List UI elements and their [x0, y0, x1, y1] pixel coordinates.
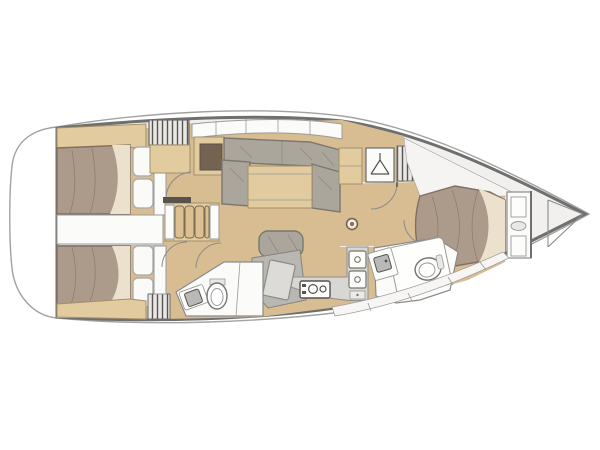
- cooktop-knob: [302, 284, 306, 287]
- engine-compartment: [57, 215, 163, 244]
- mast-post-center: [350, 222, 354, 226]
- side-settee-endcap: [165, 205, 174, 239]
- sink-basin: [349, 251, 366, 268]
- aft-cabin-top-door: [163, 197, 191, 203]
- shelf-oval-inset: [511, 222, 526, 231]
- wardrobe: [154, 246, 166, 294]
- sink-basin: [349, 271, 366, 288]
- basin-faucet: [385, 260, 388, 263]
- side-settee-cushion: [185, 206, 194, 238]
- aft-cabinet-inset: [200, 144, 222, 170]
- headboard-shelf: [511, 236, 526, 256]
- drawer-knob: [356, 294, 358, 296]
- floorplan-canvas: [0, 0, 600, 450]
- aft-cabin-bottom: [57, 245, 170, 319]
- side-settee-cushion: [195, 206, 204, 238]
- cooktop-knob: [302, 291, 306, 294]
- settee-right-cushion: [312, 164, 340, 212]
- yacht-floorplan: [0, 0, 600, 450]
- companionway-landing: [150, 145, 190, 173]
- side-settee-cushion: [205, 206, 209, 238]
- pillow: [133, 246, 153, 275]
- pillow: [133, 179, 153, 208]
- companionway-steps: [149, 120, 189, 145]
- settee-left-cushion: [222, 160, 250, 206]
- slatted-locker: [148, 294, 170, 319]
- saloon-table: [248, 166, 312, 208]
- side-settee-cushion: [175, 206, 184, 238]
- side-settee-endcap: [210, 205, 219, 239]
- headboard-shelf: [511, 197, 526, 217]
